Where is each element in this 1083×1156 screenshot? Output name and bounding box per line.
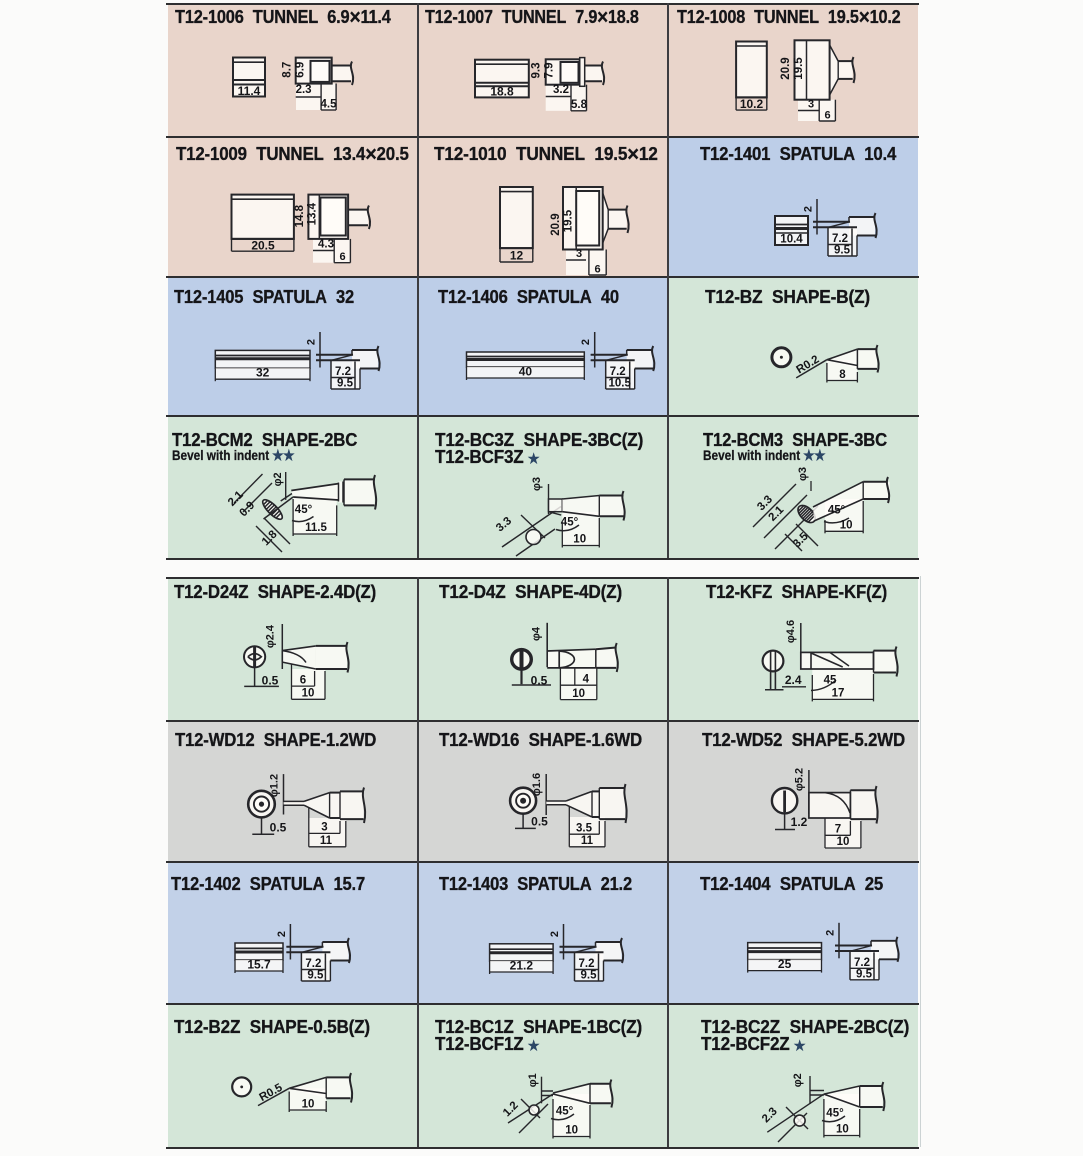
svg-text:φ4.6: φ4.6 — [785, 619, 797, 642]
svg-text:2: 2 — [803, 206, 815, 212]
svg-text:11: 11 — [581, 835, 594, 847]
svg-text:21.2: 21.2 — [510, 958, 534, 972]
svg-text:3.5: 3.5 — [791, 530, 811, 550]
svg-text:0.5: 0.5 — [531, 673, 548, 687]
svg-text:19.5: 19.5 — [562, 209, 574, 232]
svg-text:3: 3 — [576, 248, 582, 260]
svg-text:9.5: 9.5 — [581, 969, 598, 981]
svg-text:10.5: 10.5 — [609, 378, 632, 390]
svg-text:10: 10 — [302, 1098, 315, 1110]
svg-text:10: 10 — [565, 1125, 578, 1137]
svg-text:9.5: 9.5 — [856, 968, 873, 980]
svg-text:45°: 45° — [826, 1108, 844, 1120]
svg-text:3.3: 3.3 — [494, 515, 514, 534]
svg-text:2: 2 — [825, 929, 837, 935]
svg-text:φ1: φ1 — [527, 1073, 539, 1087]
svg-text:R0.5: R0.5 — [258, 1081, 286, 1104]
svg-text:18.8: 18.8 — [490, 85, 514, 99]
svg-text:10: 10 — [573, 534, 586, 546]
svg-text:3.2: 3.2 — [553, 84, 569, 96]
svg-text:13.4: 13.4 — [307, 202, 319, 225]
svg-text:R0.2: R0.2 — [794, 354, 821, 377]
svg-text:45°: 45° — [556, 1106, 574, 1118]
svg-text:4.5: 4.5 — [321, 99, 338, 111]
svg-text:40: 40 — [519, 365, 533, 379]
svg-text:10.2: 10.2 — [740, 97, 764, 111]
svg-text:φ2.4: φ2.4 — [265, 624, 277, 648]
svg-text:2.3: 2.3 — [296, 84, 312, 96]
svg-text:2: 2 — [306, 339, 318, 345]
svg-text:φ2: φ2 — [792, 1073, 804, 1087]
svg-text:2: 2 — [549, 930, 561, 936]
svg-text:4: 4 — [583, 673, 590, 685]
svg-text:9.3: 9.3 — [531, 63, 543, 79]
svg-text:2: 2 — [276, 930, 288, 936]
svg-text:45°: 45° — [295, 504, 313, 516]
svg-text:20.5: 20.5 — [251, 239, 275, 253]
svg-text:20.9: 20.9 — [780, 57, 792, 79]
svg-text:7.2: 7.2 — [832, 233, 848, 245]
svg-text:32: 32 — [256, 366, 270, 380]
svg-text:7: 7 — [835, 824, 841, 836]
svg-text:7.2: 7.2 — [610, 366, 626, 378]
svg-text:φ2: φ2 — [272, 472, 284, 486]
svg-text:8: 8 — [839, 369, 846, 381]
svg-text:3: 3 — [808, 99, 814, 111]
svg-text:φ1.6: φ1.6 — [531, 773, 543, 796]
svg-text:2.3: 2.3 — [760, 1105, 780, 1125]
svg-text:φ4: φ4 — [531, 626, 543, 641]
svg-text:10.4: 10.4 — [780, 234, 803, 246]
svg-text:7.2: 7.2 — [579, 958, 595, 970]
svg-text:17: 17 — [832, 687, 845, 699]
svg-text:0.5: 0.5 — [262, 673, 279, 687]
svg-text:1.2: 1.2 — [791, 815, 808, 829]
svg-text:45°: 45° — [561, 517, 579, 529]
svg-text:0.5: 0.5 — [270, 820, 287, 834]
svg-text:φ1.2: φ1.2 — [268, 774, 280, 797]
svg-text:2: 2 — [580, 339, 592, 345]
svg-text:10: 10 — [837, 836, 850, 848]
svg-text:φ3: φ3 — [797, 467, 809, 481]
svg-text:9.5: 9.5 — [307, 969, 324, 981]
svg-text:14.8: 14.8 — [294, 204, 306, 227]
svg-text:φ3: φ3 — [531, 477, 543, 491]
svg-text:11.4: 11.4 — [238, 84, 261, 98]
svg-text:4.3: 4.3 — [318, 239, 334, 251]
svg-text:3: 3 — [321, 822, 327, 834]
svg-text:6.9: 6.9 — [294, 62, 306, 78]
svg-text:10: 10 — [840, 519, 853, 531]
svg-text:15.7: 15.7 — [247, 957, 271, 971]
svg-text:20.9: 20.9 — [550, 213, 562, 235]
svg-text:10: 10 — [836, 1124, 849, 1136]
svg-text:3.5: 3.5 — [576, 822, 593, 834]
svg-text:8.7: 8.7 — [281, 62, 293, 78]
svg-text:10: 10 — [572, 687, 585, 699]
svg-text:7.2: 7.2 — [335, 366, 351, 378]
svg-text:7.2: 7.2 — [305, 958, 321, 970]
svg-text:7.9: 7.9 — [544, 63, 556, 79]
svg-text:6: 6 — [594, 264, 600, 276]
svg-text:2.4: 2.4 — [785, 673, 802, 687]
svg-text:7.2: 7.2 — [854, 956, 870, 968]
svg-text:6: 6 — [824, 110, 830, 122]
svg-text:0.5: 0.5 — [531, 815, 548, 829]
svg-text:19.5: 19.5 — [793, 57, 805, 80]
svg-text:φ5.2: φ5.2 — [794, 768, 806, 791]
svg-text:25: 25 — [778, 957, 792, 971]
svg-text:45: 45 — [824, 674, 837, 686]
svg-text:10: 10 — [302, 687, 315, 699]
svg-text:45°: 45° — [828, 505, 846, 517]
svg-text:5.8: 5.8 — [571, 99, 588, 111]
svg-text:9.5: 9.5 — [834, 245, 851, 257]
svg-text:6: 6 — [300, 674, 306, 686]
svg-text:12: 12 — [510, 249, 524, 263]
svg-text:11.5: 11.5 — [305, 522, 327, 534]
svg-text:9.5: 9.5 — [337, 378, 354, 390]
svg-text:6: 6 — [339, 251, 345, 263]
svg-text:11: 11 — [320, 835, 333, 847]
